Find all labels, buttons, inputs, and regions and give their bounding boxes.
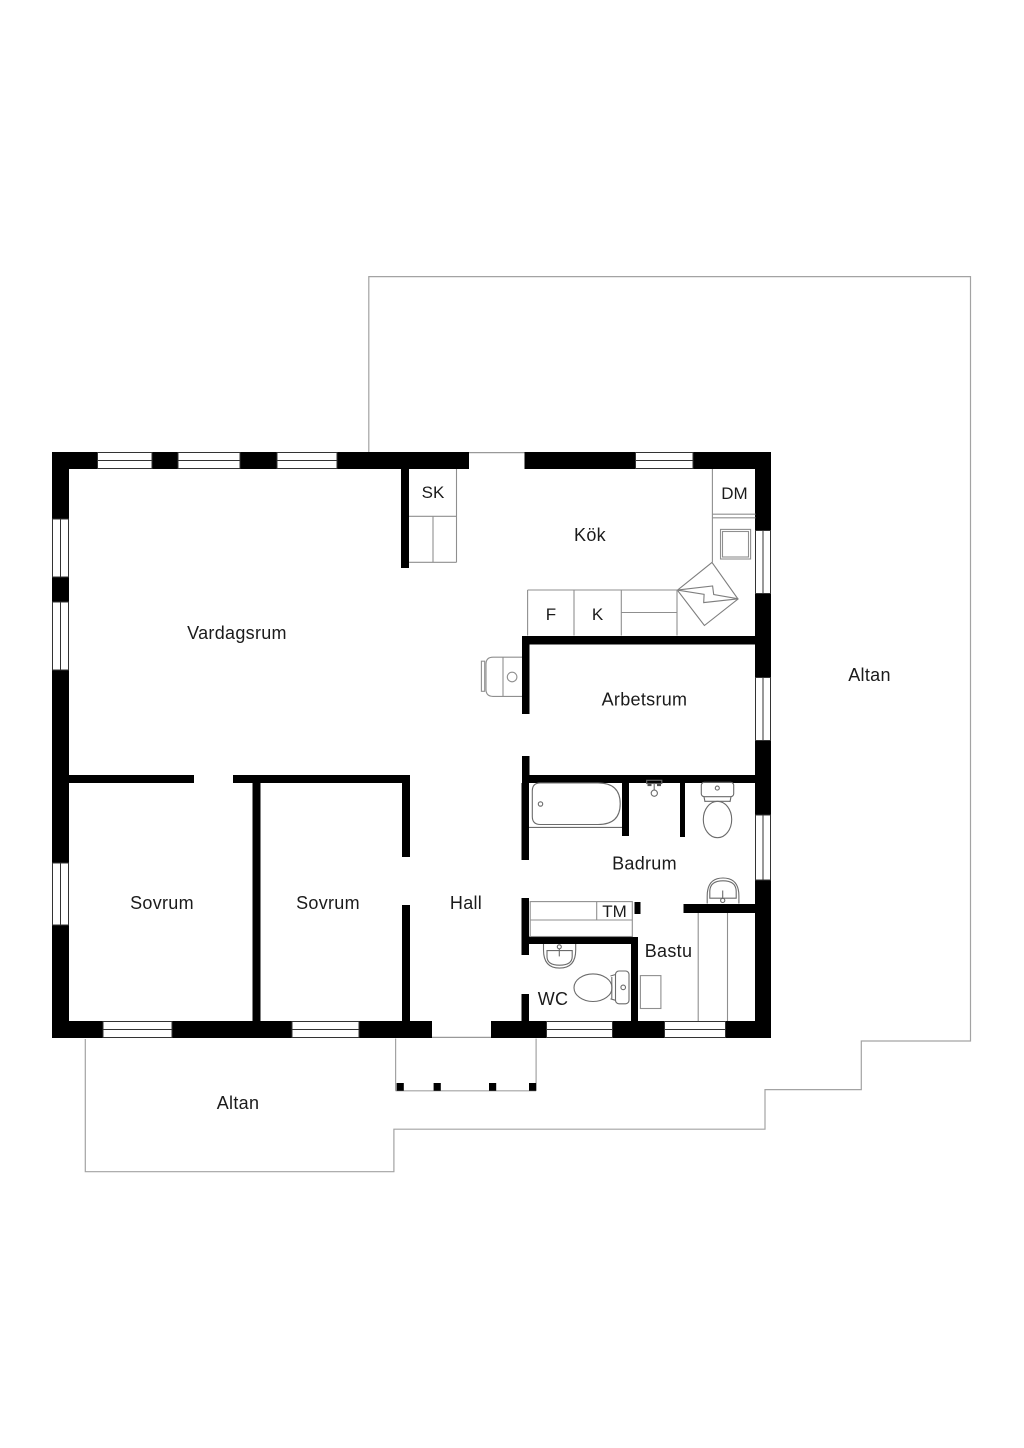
svg-text:K: K — [592, 605, 604, 624]
svg-text:TM: TM — [602, 902, 627, 921]
svg-text:Altan: Altan — [848, 665, 891, 685]
svg-text:Sovrum: Sovrum — [130, 893, 194, 913]
svg-text:SK: SK — [422, 483, 445, 502]
svg-text:Sovrum: Sovrum — [296, 893, 360, 913]
svg-text:Altan: Altan — [217, 1093, 260, 1113]
svg-text:Bastu: Bastu — [645, 941, 693, 961]
svg-text:DM: DM — [721, 484, 747, 503]
svg-text:Kök: Kök — [574, 525, 607, 545]
svg-text:Vardagsrum: Vardagsrum — [187, 623, 287, 643]
svg-text:Hall: Hall — [450, 893, 482, 913]
svg-text:Badrum: Badrum — [612, 854, 677, 874]
svg-text:WC: WC — [538, 989, 569, 1009]
svg-text:Arbetsrum: Arbetsrum — [602, 690, 688, 710]
svg-text:F: F — [546, 605, 556, 624]
